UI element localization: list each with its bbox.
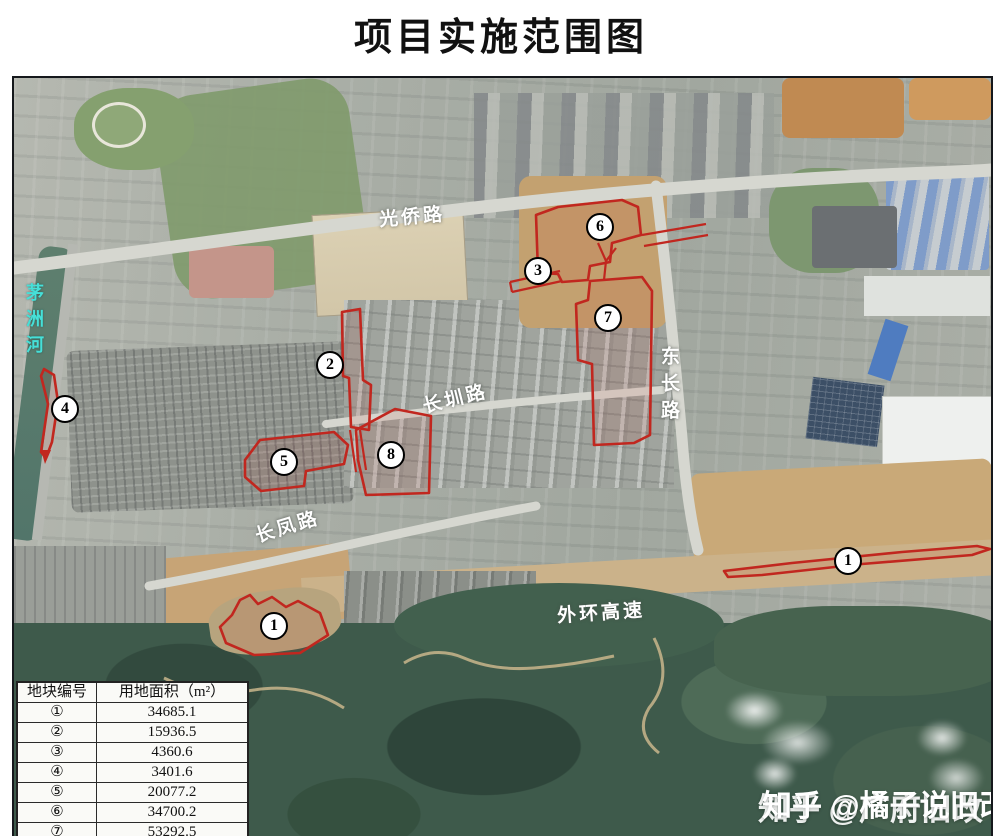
page-title: 项目实施范围图: [0, 6, 1002, 61]
cell-area: 34700.2: [97, 803, 249, 823]
figure-page: 项目实施范围图: [0, 0, 1002, 836]
cell-plot-no: ⑦: [17, 823, 97, 836]
marker-plot-1-east: 1: [834, 547, 862, 575]
satellite-map: 6 3 7 2 4 5 8 1 1 光侨路 长圳路 东长路 长凤路 外环高速 茅…: [12, 76, 993, 836]
cell-plot-no: ②: [17, 723, 97, 743]
table-row: ①34685.1: [17, 703, 248, 723]
cell-plot-no: ⑤: [17, 783, 97, 803]
cell-area: 4360.6: [97, 743, 249, 763]
cell-area: 15936.5: [97, 723, 249, 743]
marker-plot-4: 4: [51, 395, 79, 423]
cell-plot-no: ③: [17, 743, 97, 763]
table-row: ⑥34700.2: [17, 803, 248, 823]
plot-4-arrow: [41, 450, 51, 464]
header-plot-no: 地块编号: [17, 682, 97, 703]
table-row: ⑤20077.2: [17, 783, 248, 803]
header-land-area: 用地面积（m²）: [97, 682, 249, 703]
road-label-dongchang: 东长路: [655, 346, 682, 456]
table-row: ③4360.6: [17, 743, 248, 763]
cell-area: 20077.2: [97, 783, 249, 803]
cell-plot-no: ④: [17, 763, 97, 783]
plot-area-table: 地块编号 用地面积（m²） ①34685.1 ②15936.5 ③4360.6 …: [16, 681, 249, 836]
cell-area: 3401.6: [97, 763, 249, 783]
road-label-guangqiao: 光侨路: [378, 199, 446, 232]
table-header-row: 地块编号 用地面积（m²）: [17, 682, 248, 703]
marker-plot-2: 2: [316, 351, 344, 379]
marker-plot-7: 7: [594, 304, 622, 332]
table-row: ②15936.5: [17, 723, 248, 743]
cell-plot-no: ①: [17, 703, 97, 723]
plot-6-east-arm: [642, 224, 708, 246]
cell-area: 34685.1: [97, 703, 249, 723]
cell-area: 53292.5: [97, 823, 249, 836]
marker-plot-5: 5: [270, 448, 298, 476]
plot-outline-7: [576, 277, 652, 445]
marker-plot-6: 6: [586, 213, 614, 241]
river-label-maozhou: 茅洲河: [21, 283, 47, 383]
watermark-zhihu-front: 知乎 @橘子说旧改: [762, 781, 993, 825]
table-row: ④3401.6: [17, 763, 248, 783]
marker-plot-1-south: 1: [260, 612, 288, 640]
marker-plot-8: 8: [377, 441, 405, 469]
table-row: ⑦53292.5: [17, 823, 248, 836]
marker-plot-3: 3: [524, 257, 552, 285]
cell-plot-no: ⑥: [17, 803, 97, 823]
plot-outline-2: [342, 309, 371, 430]
